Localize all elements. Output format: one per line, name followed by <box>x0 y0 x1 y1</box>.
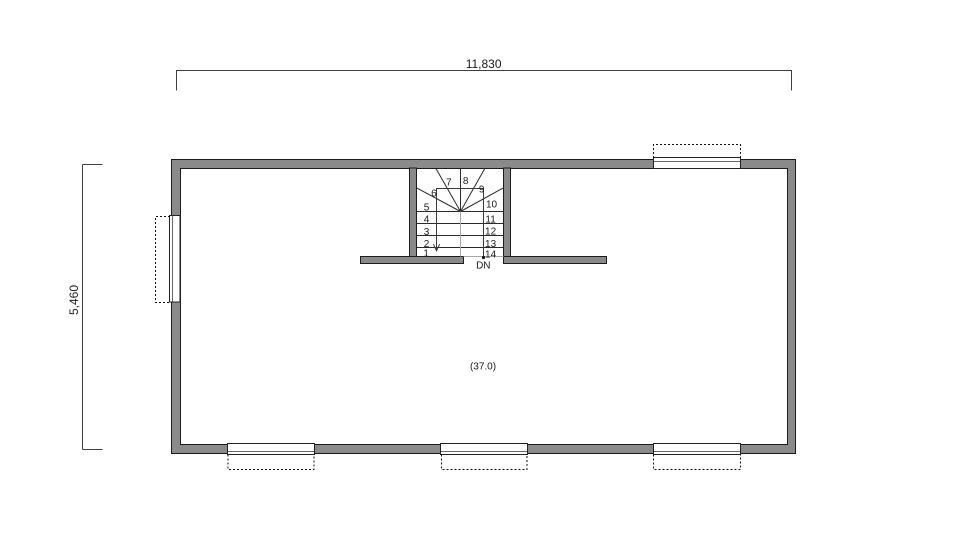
svg-text:3: 3 <box>424 227 430 238</box>
svg-text:6: 6 <box>431 189 437 200</box>
svg-text:5: 5 <box>424 202 430 213</box>
svg-text:11: 11 <box>485 214 496 225</box>
svg-text:8: 8 <box>463 176 469 187</box>
svg-text:13: 13 <box>485 239 497 250</box>
svg-text:DN: DN <box>476 260 490 271</box>
svg-text:11,830: 11,830 <box>466 57 502 71</box>
svg-text:5,460: 5,460 <box>67 285 81 315</box>
svg-text:10: 10 <box>486 199 498 210</box>
svg-text:4: 4 <box>424 215 430 226</box>
svg-text:9: 9 <box>479 185 485 196</box>
svg-text:(37.0): (37.0) <box>470 362 496 373</box>
svg-text:2: 2 <box>424 239 430 250</box>
svg-text:14: 14 <box>485 250 497 261</box>
svg-text:1: 1 <box>423 249 429 260</box>
svg-text:7: 7 <box>446 177 452 188</box>
svg-text:12: 12 <box>485 227 497 238</box>
